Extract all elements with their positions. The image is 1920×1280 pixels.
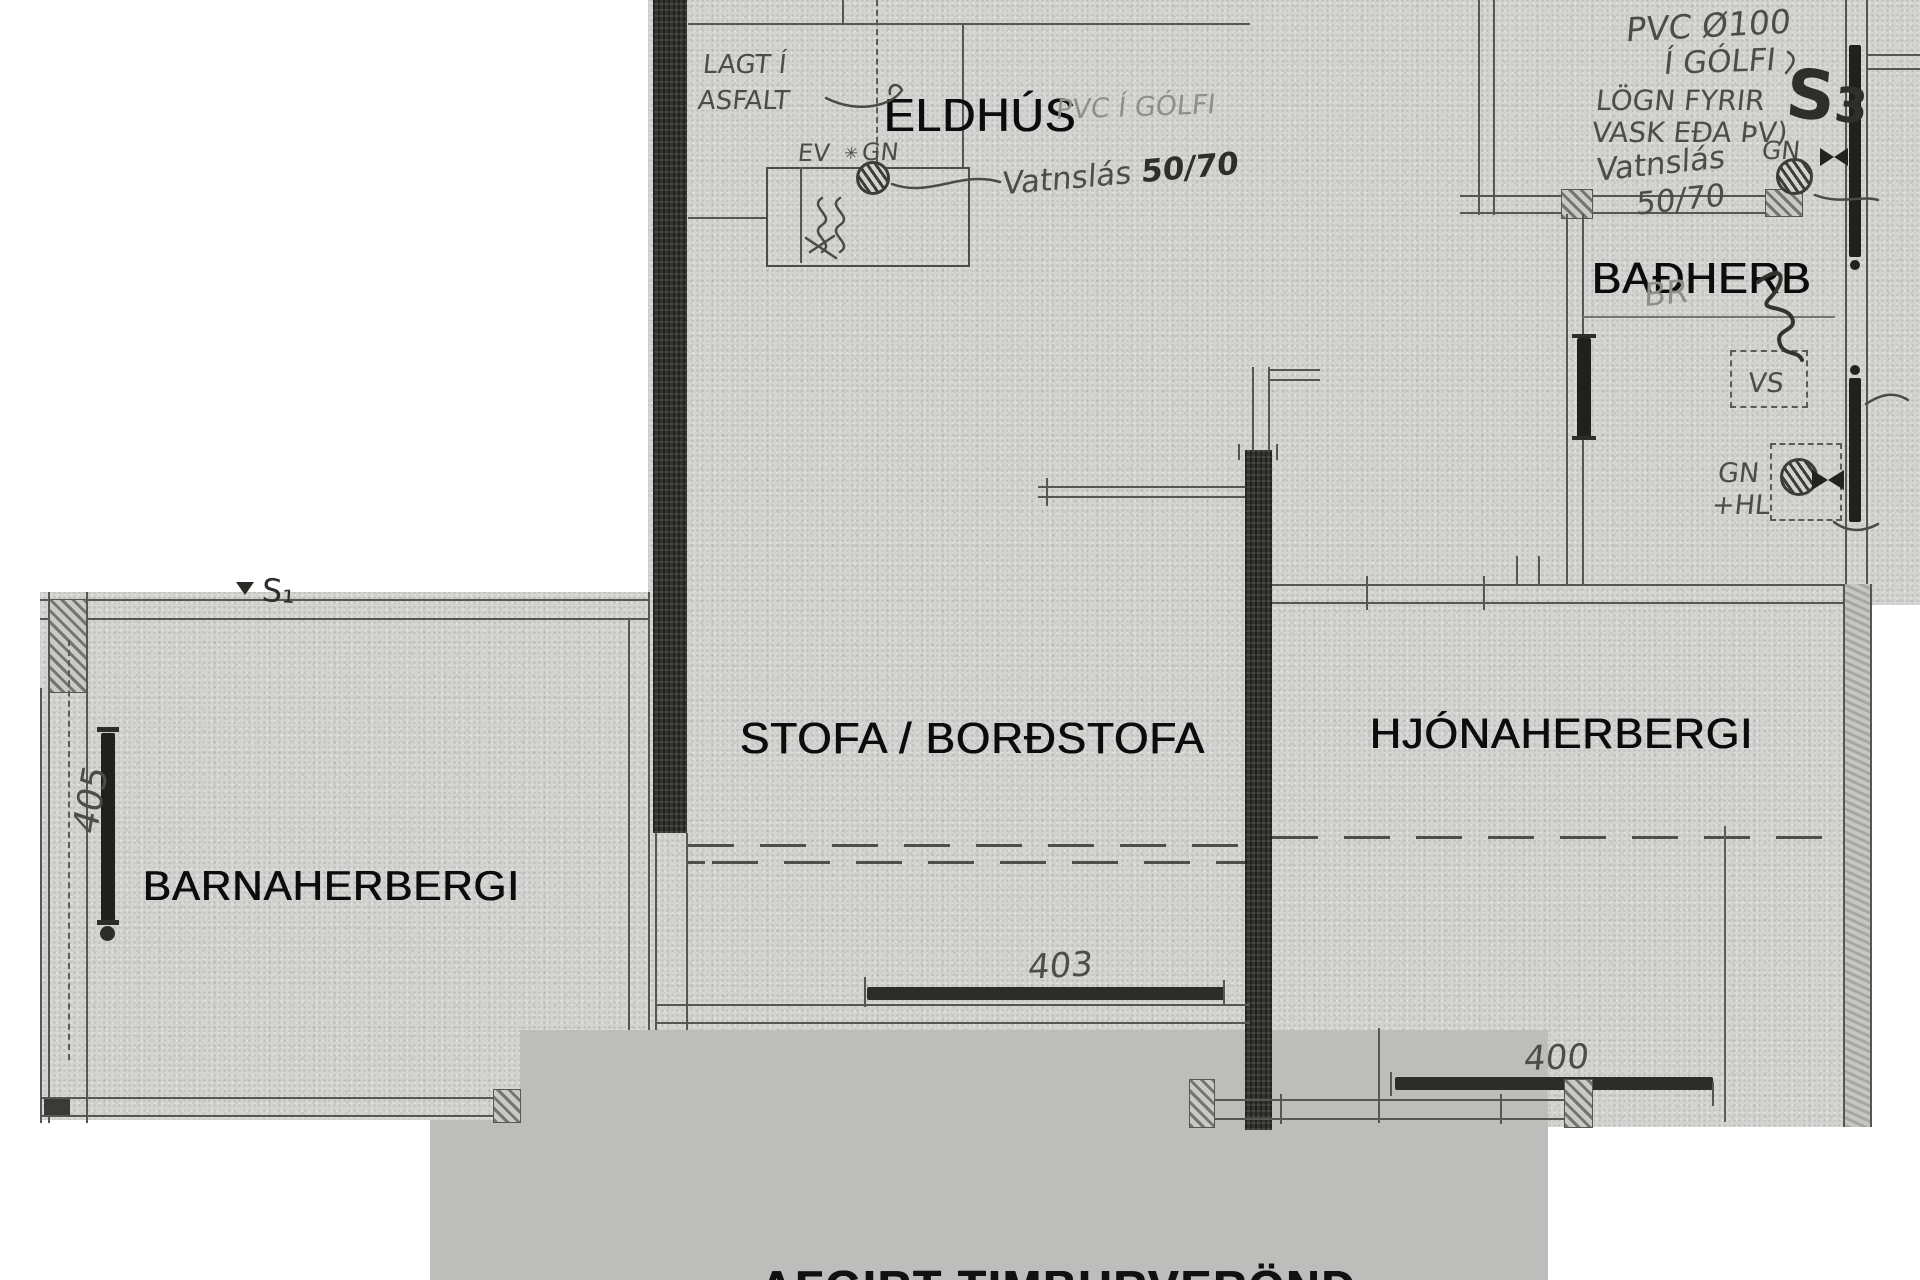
note-s1: S₁ xyxy=(261,571,297,611)
wall-tick xyxy=(1483,576,1485,610)
dim-tick xyxy=(1712,1082,1714,1106)
radiator-cap xyxy=(97,920,119,925)
note-pvc-i-golfi: PVC Í GÓLFI xyxy=(1054,89,1217,126)
room-label-badherb: BAÐHERB xyxy=(1592,254,1812,304)
wall-line xyxy=(40,618,650,620)
wall-line xyxy=(1566,214,1568,586)
note-s3-top: S3 xyxy=(1783,55,1872,141)
wall-line xyxy=(655,1022,1250,1024)
underfloor-heat-dashes xyxy=(688,844,1245,847)
asterisk-mark-icon: ✳ xyxy=(843,144,859,164)
deck-label-timburverond: AFGIRT TIMBURVERÖND xyxy=(760,1260,1357,1280)
soil-pipe xyxy=(1849,378,1861,522)
timber-deck-area xyxy=(430,1030,1548,1280)
wall-tick xyxy=(1366,576,1368,610)
wall-stub xyxy=(1268,369,1320,371)
wall-tick xyxy=(1280,1094,1282,1124)
pipe-dot xyxy=(100,926,115,941)
wall-line xyxy=(1190,1118,1592,1120)
wall-band-right xyxy=(1843,584,1872,1127)
floor-drain-icon xyxy=(1780,458,1818,496)
floorplan-canvas: LAGT Í ASFALT EV ✳ GN ELDHÚS PVC Í GÓLFI… xyxy=(0,0,1920,1280)
note-vs: VS xyxy=(1746,368,1785,399)
underfloor-heat-dashes xyxy=(688,861,1245,864)
wall-line xyxy=(655,833,657,1030)
wall-line xyxy=(1038,486,1272,488)
wall-line xyxy=(1272,584,1868,586)
wall-line xyxy=(1252,367,1254,453)
kitchen-inner-wall-line xyxy=(688,23,1250,25)
dimension-bar-400 xyxy=(1395,1077,1713,1090)
wall-tick xyxy=(1046,478,1048,506)
wall-line xyxy=(40,599,650,601)
wall-tick xyxy=(1500,1094,1502,1124)
wall-line xyxy=(1493,0,1495,215)
wall-line xyxy=(1038,496,1272,498)
paper-barnaherbergi-lower xyxy=(40,1030,520,1120)
wall-hatch-post xyxy=(1190,1080,1214,1127)
dim-tick xyxy=(1223,980,1225,1006)
kitchen-counter-line xyxy=(800,167,802,263)
wall-line xyxy=(1868,54,1920,56)
wall-line xyxy=(648,592,650,1030)
window-dashed-line xyxy=(68,640,70,1060)
wall-line xyxy=(40,1115,520,1117)
wall-line xyxy=(1478,0,1480,215)
room-label-stofa: STOFA / BORÐSTOFA xyxy=(740,714,1205,764)
kitchen-line xyxy=(688,217,766,219)
floor-drain-icon xyxy=(856,161,890,195)
partition-line xyxy=(1724,826,1726,1122)
level-marker-icon xyxy=(236,582,254,595)
paper-barnaherbergi-block xyxy=(40,592,650,1030)
s3-letter: S xyxy=(1783,55,1839,138)
note-gn-bath: GN xyxy=(1716,458,1760,489)
wall-hatch-post xyxy=(1565,1080,1592,1127)
wall-line xyxy=(1868,68,1920,70)
note-hl: +HL xyxy=(1710,490,1771,521)
dim-400: 400 xyxy=(1522,1037,1591,1079)
radiator-bar xyxy=(1577,338,1591,438)
dashed-partition-wall xyxy=(1272,836,1845,839)
wall-stub xyxy=(1268,379,1320,381)
wall-tick xyxy=(1276,444,1278,460)
radiator-cap xyxy=(97,727,119,732)
wall-line xyxy=(86,592,88,1123)
wall-line xyxy=(40,1097,520,1099)
room-label-eldhus: ELDHÚS xyxy=(884,88,1077,142)
note-i-golfi: Í GÓLFI xyxy=(1662,42,1777,82)
s3-number: 3 xyxy=(1832,77,1870,136)
note-asfalt: ASFALT xyxy=(696,86,791,116)
bath-inner-line xyxy=(1583,316,1835,318)
floor-drain-icon xyxy=(1776,158,1813,195)
note-br: BR xyxy=(1643,272,1688,315)
dimension-bar-403 xyxy=(867,987,1225,1000)
dim-403: 403 xyxy=(1026,944,1094,988)
room-label-hjonaherbergi: HJÓNAHERBERGI xyxy=(1370,710,1753,759)
dim-tick xyxy=(864,977,866,1007)
radiator-cap xyxy=(1572,436,1596,440)
door-tick xyxy=(1538,556,1540,586)
note-logn-fyrir: LÖGN FYRIR xyxy=(1594,84,1766,117)
note-lagt-i: LAGT Í xyxy=(701,50,788,80)
room-label-barnaherbergi: BARNAHERBERGI xyxy=(143,862,520,910)
dim-tick xyxy=(1390,1072,1392,1096)
window-sill-mark xyxy=(44,1099,70,1115)
radiator-cap xyxy=(1572,334,1596,338)
door-tick xyxy=(1516,556,1518,586)
wall-line xyxy=(40,688,42,1123)
wall-line xyxy=(655,1004,1250,1006)
wall-hatch-post xyxy=(494,1090,520,1122)
wall-stofa-left xyxy=(653,0,687,833)
note-ev: EV xyxy=(797,139,832,167)
wall-centre-dark xyxy=(1245,450,1272,1130)
kitchen-line xyxy=(842,0,844,25)
note-gn-kitchen: GN xyxy=(861,138,901,166)
wall-tick xyxy=(1238,444,1240,460)
dim-tick xyxy=(1378,1028,1380,1123)
wall-line xyxy=(628,620,630,1030)
wall-line xyxy=(1272,602,1868,604)
wall-line xyxy=(1190,1099,1592,1101)
